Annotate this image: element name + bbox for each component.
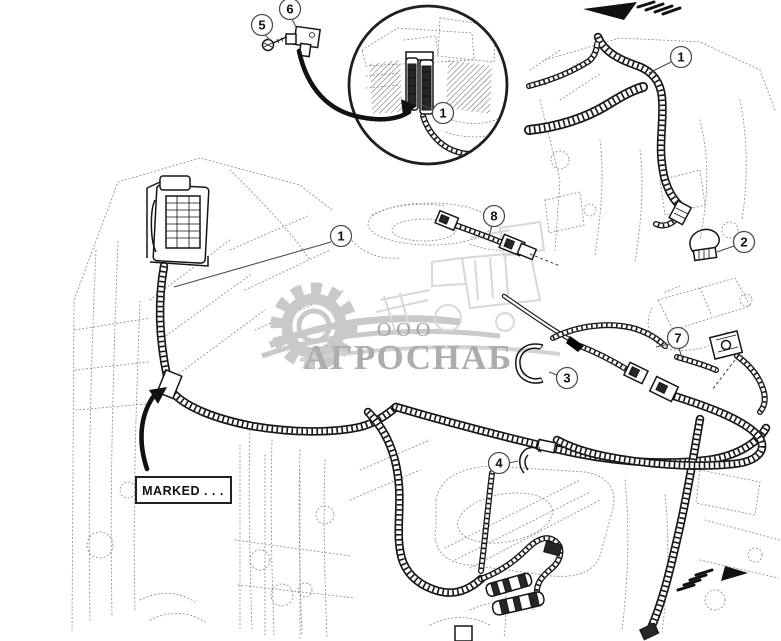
svg-text:1: 1 <box>439 106 446 121</box>
marked-arrow <box>141 387 167 469</box>
svg-text:7: 7 <box>674 331 681 346</box>
motor-connector-lead <box>737 356 765 412</box>
harness-vertical-thin <box>481 473 492 571</box>
callout-3[interactable]: 3 <box>549 368 578 389</box>
jumper-harness-8-tube <box>455 225 503 243</box>
svg-text:1: 1 <box>677 50 684 65</box>
callout-6[interactable]: 6 <box>280 0 301 27</box>
harness-tube-bottom-right-arc <box>651 419 700 628</box>
ecu-connector <box>147 176 209 266</box>
parts-diagram-canvas: ООО АГРОСНАБ <box>0 0 781 641</box>
svg-text:6: 6 <box>286 2 293 17</box>
harness-stub-7b <box>677 357 716 370</box>
jumper-8-dashed-leader <box>530 254 560 266</box>
marked-label: MARKED . . . <box>142 484 224 498</box>
motor-dashed-leader <box>712 360 735 390</box>
harness-tube-to-connector-pair <box>580 346 626 369</box>
clip-6 <box>286 26 320 56</box>
harness-tube-lower-run <box>174 394 396 431</box>
bottom-end-connector <box>455 623 659 641</box>
svg-text:4: 4 <box>495 456 503 471</box>
harness-tube-top-right-thin <box>529 44 597 86</box>
watermark-company-name: АГРОСНАБ <box>303 338 512 377</box>
flow-direction-arrow-bottom <box>678 566 748 590</box>
flow-direction-arrow-top <box>583 2 680 20</box>
harness-tube-ecu-drop <box>160 266 167 376</box>
harness-tube-top-right-branch <box>529 87 643 130</box>
callout-4[interactable]: 4 <box>489 453 519 474</box>
svg-text:2: 2 <box>740 235 747 250</box>
svg-text:8: 8 <box>490 209 497 224</box>
callout-1-top-harness[interactable]: 1 <box>649 47 692 74</box>
svg-text:1: 1 <box>337 229 344 244</box>
harness-tube-top-right-main <box>598 37 680 206</box>
marked-label-box: MARKED . . . <box>136 477 231 503</box>
engine-sketch-left <box>72 158 345 638</box>
hatched-block-right <box>446 60 492 114</box>
svg-text:5: 5 <box>258 18 265 33</box>
svg-text:3: 3 <box>563 371 570 386</box>
clip-2 <box>690 229 719 260</box>
hatched-block-left <box>370 60 402 114</box>
callout-2[interactable]: 2 <box>717 232 755 253</box>
harness-tube-descent <box>368 412 481 593</box>
sensor-lead-smooth <box>504 296 576 343</box>
detail-view-circle <box>349 6 508 164</box>
callout-5[interactable]: 5 <box>252 15 273 42</box>
